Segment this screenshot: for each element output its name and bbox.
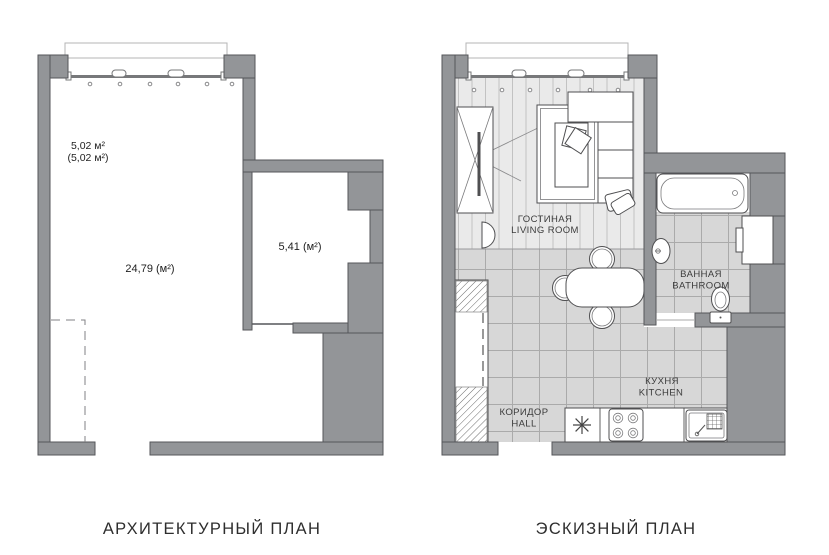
- bathtub-icon: [657, 174, 748, 213]
- balcony-outline: [466, 43, 628, 58]
- hall-label-ru: КОРИДОР: [500, 407, 549, 418]
- right-plan-caption: ЭСКИЗНЫЙ ПЛАН: [536, 519, 697, 538]
- toilet-icon: [710, 287, 731, 323]
- kitchen-label-ru: КУХНЯ: [645, 376, 679, 387]
- main-room-area-label: 24,79 (м²): [125, 263, 174, 275]
- bathroom-tile-floor: [656, 212, 750, 313]
- washing-machine-icon: [736, 216, 773, 264]
- right-plan: ГОСТИНАЯ LIVING ROOM ВАННАЯ BATHROOM КУХ…: [442, 43, 785, 455]
- living-room-label-en: LIVING ROOM: [511, 225, 579, 236]
- washbasin-icon: [652, 239, 670, 264]
- stove-icon: [609, 409, 643, 441]
- floor-plans-drawing: 5,02 м² (5,02 м²) 24,79 (м²) 5,41 (м²): [0, 0, 829, 555]
- sink-unit-icon: [686, 410, 727, 441]
- kitchen-sink-symbol: [573, 416, 591, 434]
- balcony-outline: [65, 43, 227, 58]
- tv-icon: [478, 132, 481, 196]
- small-room-area-label: 5,41 (м²): [278, 241, 321, 253]
- left-plan-walls: [38, 55, 383, 455]
- kitchen-label-en: KITCHEN: [639, 388, 684, 399]
- dining-table: [566, 268, 644, 307]
- floor-plan-page: 5,02 м² (5,02 м²) 24,79 (м²) 5,41 (м²): [0, 0, 829, 555]
- bathroom-label-en: BATHROOM: [672, 281, 729, 292]
- window: [66, 70, 226, 80]
- radiator-dots: [88, 82, 234, 86]
- hall-closet-icon: [455, 280, 488, 443]
- left-plan-caption: АРХИТЕКТУРНЫЙ ПЛАН: [103, 519, 321, 538]
- living-room-label-ru: ГОСТИНАЯ: [518, 214, 572, 225]
- left-plan: 5,02 м² (5,02 м²) 24,79 (м²) 5,41 (м²): [38, 43, 383, 455]
- dashed-zone-line: [51, 320, 85, 442]
- wardrobe-icon: [457, 107, 493, 213]
- balcony-area-label-line1: 5,02 м²: [71, 140, 106, 152]
- hall-label-en: HALL: [511, 419, 536, 430]
- bathroom-label-ru: ВАННАЯ: [680, 269, 722, 280]
- balcony-area-label-line2: (5,02 м²): [67, 152, 108, 164]
